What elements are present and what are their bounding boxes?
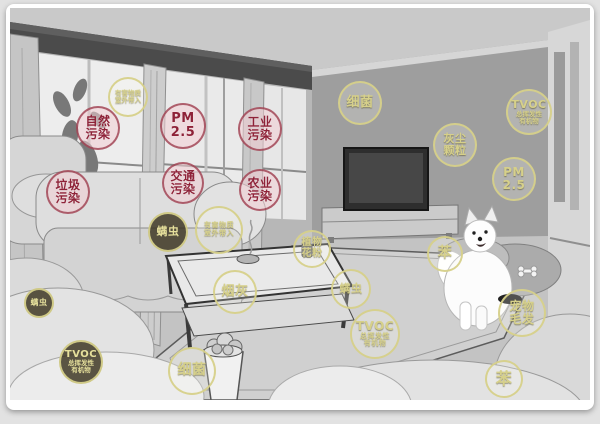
bubble-text: 花粉 bbox=[302, 249, 323, 260]
bubble-text: 有机物 bbox=[364, 340, 387, 348]
bubble-text: PM bbox=[171, 112, 194, 126]
bubble-text: 螨虫 bbox=[157, 226, 180, 238]
bubble-text: 污染 bbox=[247, 190, 272, 203]
bubble-tvoc-wall: TVOC 总挥发性 有机物 bbox=[506, 89, 552, 135]
bubble-benzene-chaise: 苯 bbox=[485, 360, 523, 398]
bubble-outdoor-harmful-window: 有害物质 室外带入 bbox=[108, 77, 148, 117]
bubble-mite-rug: 螨虫 bbox=[331, 269, 371, 309]
bubble-text: TVOC bbox=[356, 320, 394, 333]
living-room-illustration bbox=[10, 8, 590, 400]
bubble-pm25-wall: PM 2.5 bbox=[492, 157, 536, 201]
bubble-tvoc-sofa: TVOC 总挥发性 有机物 bbox=[59, 340, 103, 384]
bubble-agricultural-pollution: 农业 污染 bbox=[239, 169, 281, 211]
bubble-bacteria-wall: 细菌 bbox=[338, 81, 382, 125]
cabinet-recess bbox=[570, 42, 579, 210]
bubble-tvoc-rug: TVOC 总挥发性 有机物 bbox=[350, 309, 400, 359]
bubble-text: 污染 bbox=[170, 183, 195, 196]
bubble-text: 2.5 bbox=[171, 126, 196, 140]
bubble-text: 苯 bbox=[496, 370, 513, 387]
bubble-industrial-pollution: 工业 污染 bbox=[238, 107, 282, 151]
tv bbox=[344, 148, 428, 210]
bubble-natural-pollution: 自然 污染 bbox=[76, 106, 120, 150]
bubble-mite-sofa: 螨虫 bbox=[148, 212, 188, 252]
bubble-text: 有机物 bbox=[71, 367, 91, 374]
bubble-text: 室外带入 bbox=[115, 97, 141, 104]
bubble-pm25-window: PM 2.5 bbox=[160, 103, 206, 149]
bubble-dust-particles: 灰尘 颗粒 bbox=[433, 123, 477, 167]
illustration-page: 有害物质 室外带入 自然 污染 PM 2.5 工业 污染 垃圾 污染 交通 污染… bbox=[0, 0, 600, 424]
bubble-traffic-pollution: 交通 污染 bbox=[162, 162, 204, 204]
room-drawing bbox=[10, 8, 590, 400]
bubble-text: 污染 bbox=[85, 128, 110, 141]
bubble-plant-pollen: 植物 花粉 bbox=[293, 230, 331, 268]
bubble-pet-hair: 宠物 毛发 bbox=[498, 289, 546, 337]
bubble-bacteria-bin: 细菌 bbox=[168, 347, 216, 395]
bubble-text: 细菌 bbox=[178, 363, 207, 378]
bubble-text: 有机物 bbox=[519, 118, 539, 125]
bubble-text: 污染 bbox=[247, 129, 272, 142]
bubble-text: 颗粒 bbox=[444, 145, 467, 157]
bubble-benzene-dog: 苯 bbox=[427, 236, 463, 272]
bubble-cigarette-ash: 烟灰 bbox=[213, 270, 257, 314]
bubble-text: 螨虫 bbox=[31, 299, 48, 308]
bubble-outdoor-harmful-sofa: 有害物质 室外带入 bbox=[195, 206, 243, 254]
cabinet-recess bbox=[554, 52, 565, 202]
bubble-text: 2.5 bbox=[503, 179, 526, 192]
bubble-text: 苯 bbox=[438, 246, 453, 261]
bubble-garbage-pollution: 垃圾 污染 bbox=[46, 170, 90, 214]
bubble-mite-side: 螨虫 bbox=[24, 288, 54, 318]
bubble-text: 室外带入 bbox=[204, 230, 234, 238]
bubble-text: 烟灰 bbox=[221, 285, 248, 299]
bubble-text: 细菌 bbox=[346, 96, 373, 110]
bubble-text: 污染 bbox=[55, 192, 80, 205]
bubble-text: 毛发 bbox=[509, 313, 534, 326]
bubble-text: 螨虫 bbox=[340, 283, 363, 295]
